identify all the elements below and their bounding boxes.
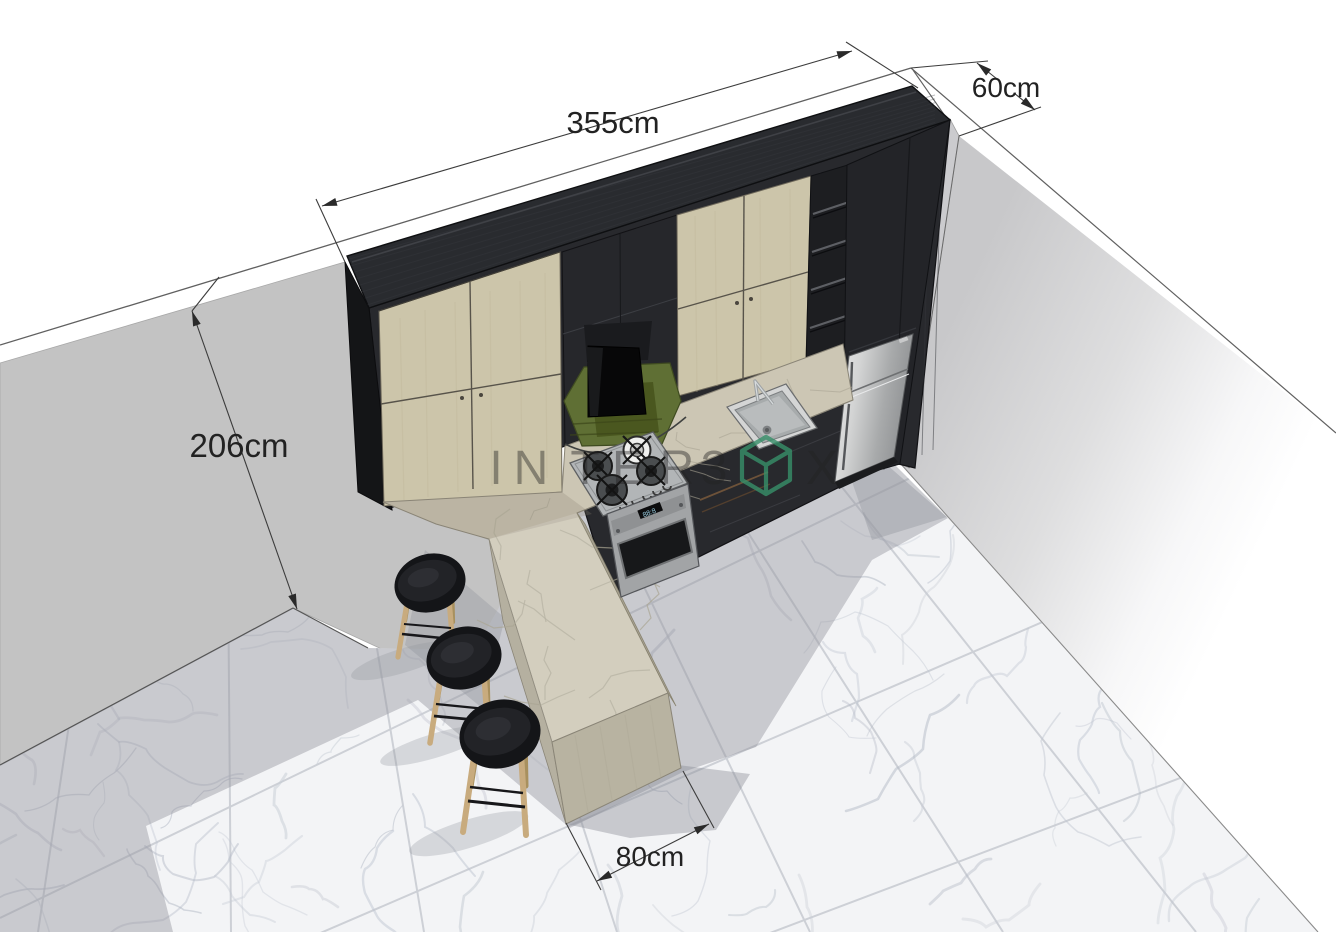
svg-text:X: X [806, 442, 838, 495]
svg-text:T: T [570, 442, 599, 495]
svg-text:60cm: 60cm [972, 72, 1040, 103]
svg-text:E: E [612, 442, 644, 495]
svg-text:355cm: 355cm [566, 105, 659, 140]
svg-text:80cm: 80cm [616, 841, 684, 872]
svg-text:N: N [514, 442, 549, 495]
svg-text:206cm: 206cm [189, 427, 288, 464]
svg-text:R: R [660, 442, 695, 495]
svg-text:3: 3 [701, 442, 728, 495]
svg-text:I: I [489, 442, 502, 495]
